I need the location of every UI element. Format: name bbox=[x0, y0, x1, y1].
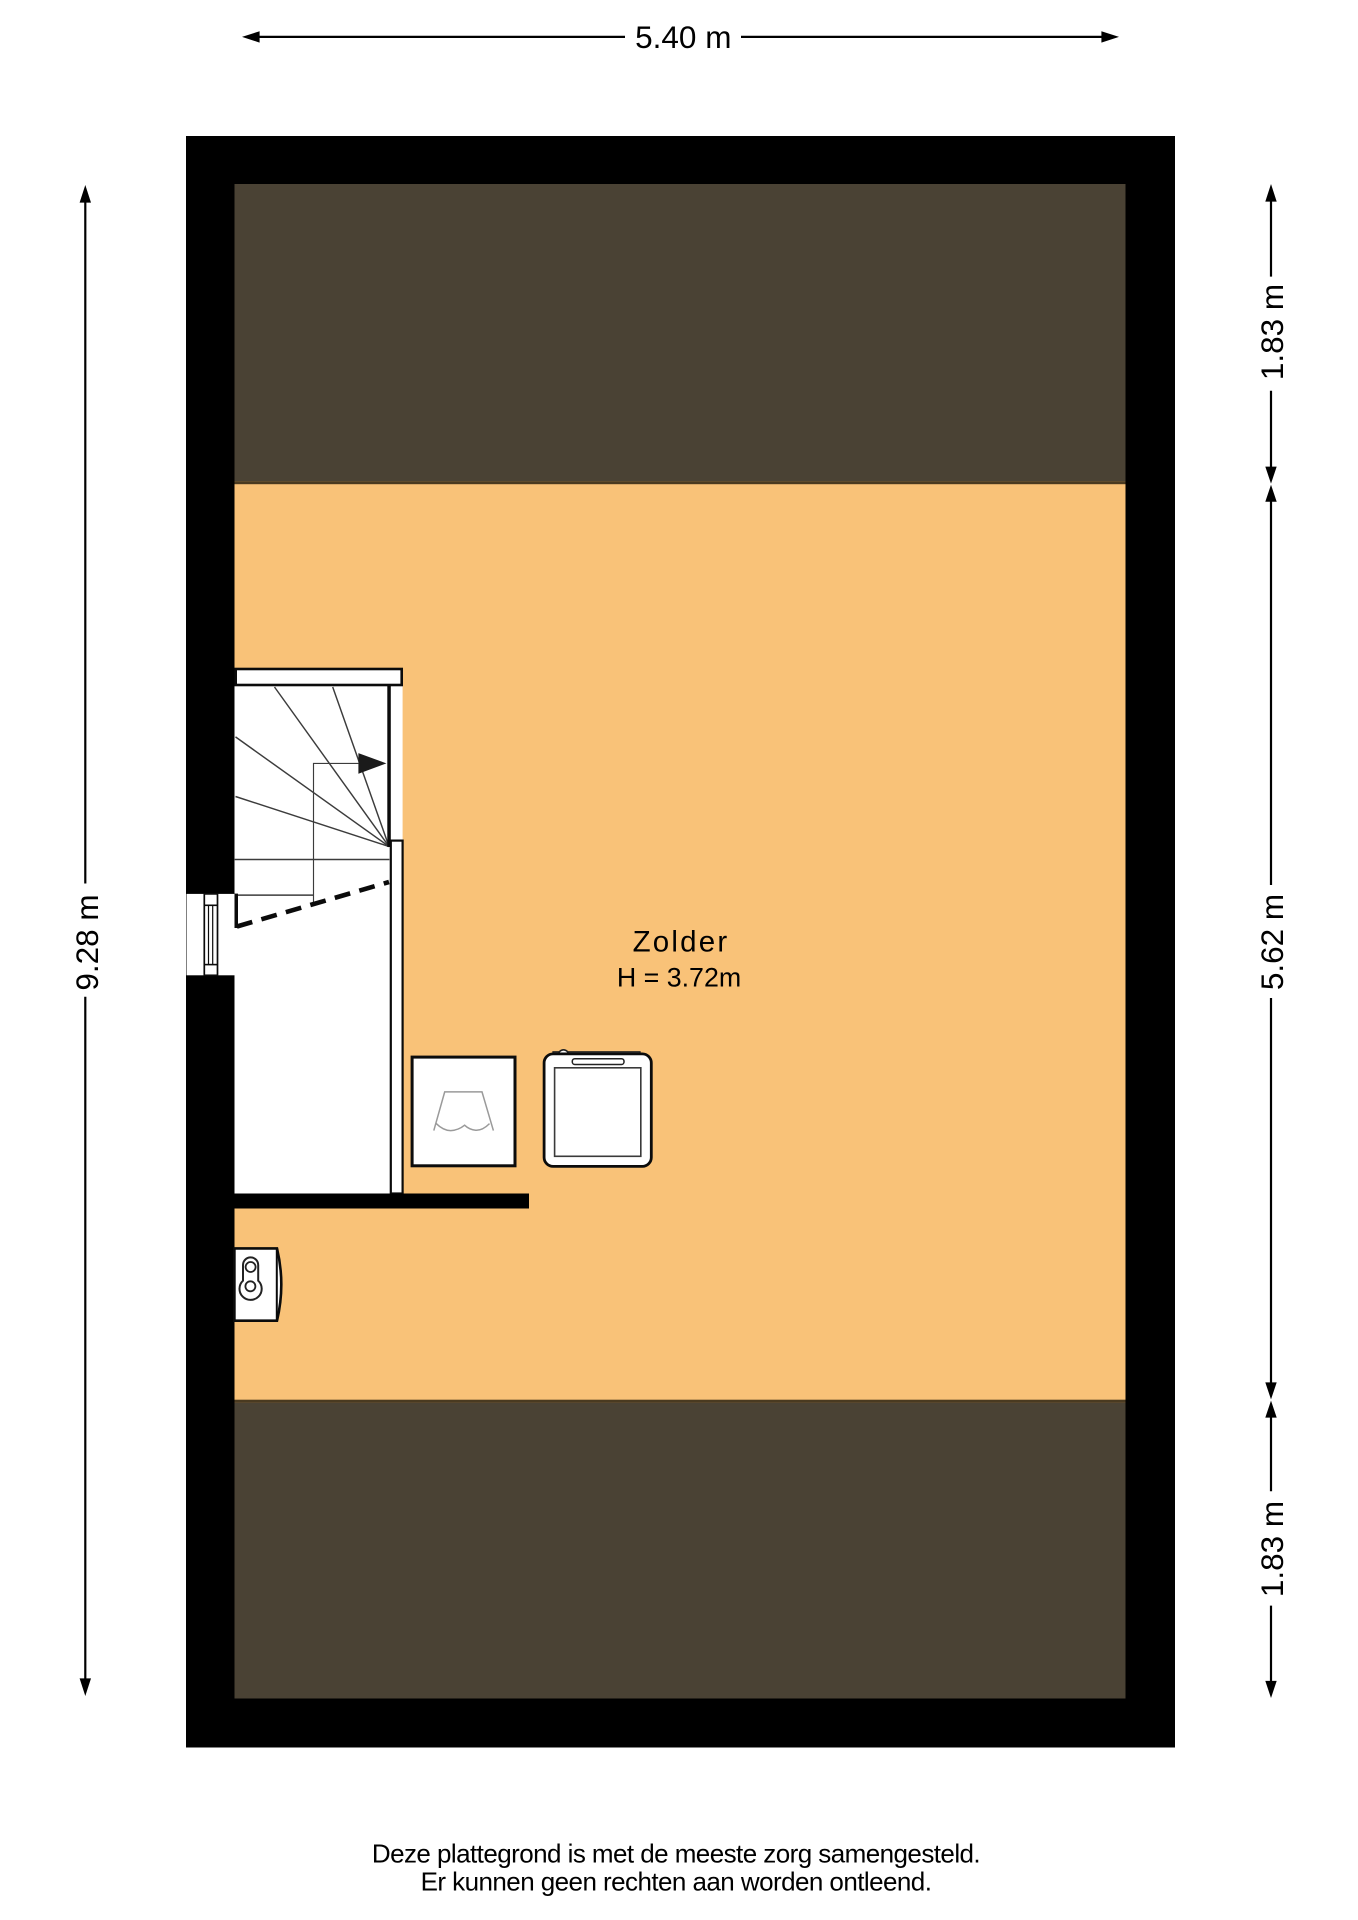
svg-text:1.83 m: 1.83 m bbox=[1254, 284, 1290, 380]
svg-text:5.40 m: 5.40 m bbox=[635, 19, 731, 55]
svg-text:Zolder: Zolder bbox=[633, 926, 730, 959]
svg-text:Er kunnen geen rechten aan wor: Er kunnen geen rechten aan worden ontlee… bbox=[421, 1867, 932, 1897]
svg-text:5.62 m: 5.62 m bbox=[1254, 894, 1290, 990]
svg-text:1.83 m: 1.83 m bbox=[1254, 1501, 1290, 1597]
svg-text:Deze plattegrond is met de mee: Deze plattegrond is met de meeste zorg s… bbox=[372, 1839, 980, 1869]
svg-text:H = 3.72m: H = 3.72m bbox=[617, 962, 741, 992]
svg-text:9.28 m: 9.28 m bbox=[69, 894, 105, 990]
